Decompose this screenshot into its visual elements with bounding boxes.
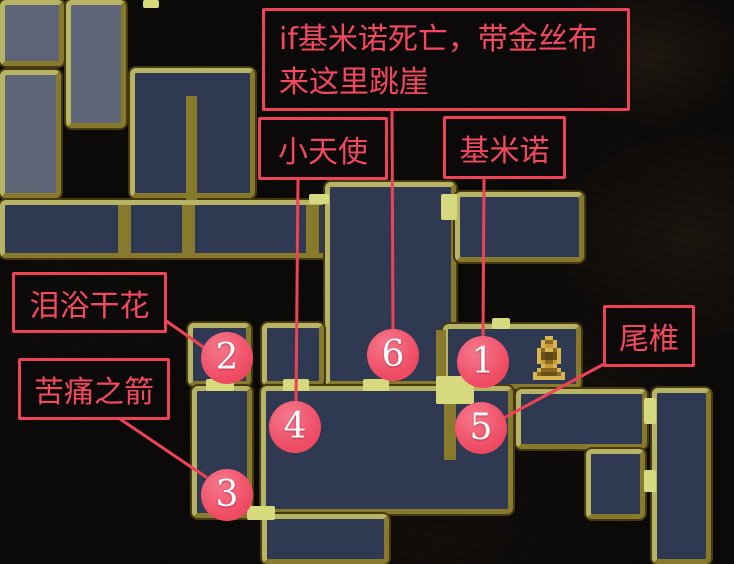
game-map-screen: if基米诺死亡，带金丝布 来这里跳崖 小天使 基米诺 泪浴干花 苦痛之箭 尾椎 … xyxy=(0,0,734,564)
label-box-little-angel: 小天使 xyxy=(258,117,388,180)
label-text: 尾椎 xyxy=(619,314,679,358)
map-wall-divider xyxy=(118,205,131,253)
map-room xyxy=(516,389,647,449)
map-wall-divider xyxy=(436,330,446,380)
map-door-connector xyxy=(143,0,159,8)
label-text: 泪浴干花 xyxy=(30,281,150,325)
map-marker-6: 6 xyxy=(367,329,419,381)
map-marker-3: 3 xyxy=(201,469,253,521)
map-room xyxy=(0,200,332,258)
label-box-pain-arrow: 苦痛之箭 xyxy=(18,358,170,420)
map-door-connector xyxy=(247,506,275,520)
player-statue-icon xyxy=(533,336,537,340)
map-room xyxy=(652,388,711,564)
map-room xyxy=(262,323,324,386)
note-line-2: 来这里跳崖 xyxy=(279,62,627,105)
map-door-connector xyxy=(644,398,656,424)
map-door-connector xyxy=(644,470,656,492)
map-marker-5: 5 xyxy=(455,402,507,454)
map-wall-divider xyxy=(306,205,319,253)
label-text: 小天使 xyxy=(278,127,368,171)
map-wall-divider xyxy=(186,96,197,200)
map-room xyxy=(586,449,645,519)
note-line-1: if基米诺死亡，带金丝布 xyxy=(279,19,627,62)
map-marker-1: 1 xyxy=(457,336,509,388)
label-box-tear-flower: 泪浴干花 xyxy=(12,272,167,333)
note-box-jump-cliff: if基米诺死亡，带金丝布 来这里跳崖 xyxy=(262,8,630,111)
label-box-jiminuo: 基米诺 xyxy=(443,116,566,179)
map-door-connector xyxy=(309,194,329,204)
map-wall-divider xyxy=(182,205,195,253)
map-room-visited xyxy=(0,70,61,198)
map-door-connector xyxy=(441,194,457,220)
map-room xyxy=(455,192,584,262)
map-room xyxy=(262,514,389,564)
map-room-visited xyxy=(0,0,64,66)
map-door-connector xyxy=(363,379,389,391)
map-room-visited xyxy=(66,0,126,128)
map-door-connector xyxy=(492,318,510,329)
label-text: 基米诺 xyxy=(460,126,550,170)
map-marker-4: 4 xyxy=(269,401,321,453)
label-text: 苦痛之箭 xyxy=(34,367,154,411)
label-box-tailbone: 尾椎 xyxy=(603,305,695,367)
map-marker-2: 2 xyxy=(201,332,253,384)
map-door-connector xyxy=(283,379,309,391)
